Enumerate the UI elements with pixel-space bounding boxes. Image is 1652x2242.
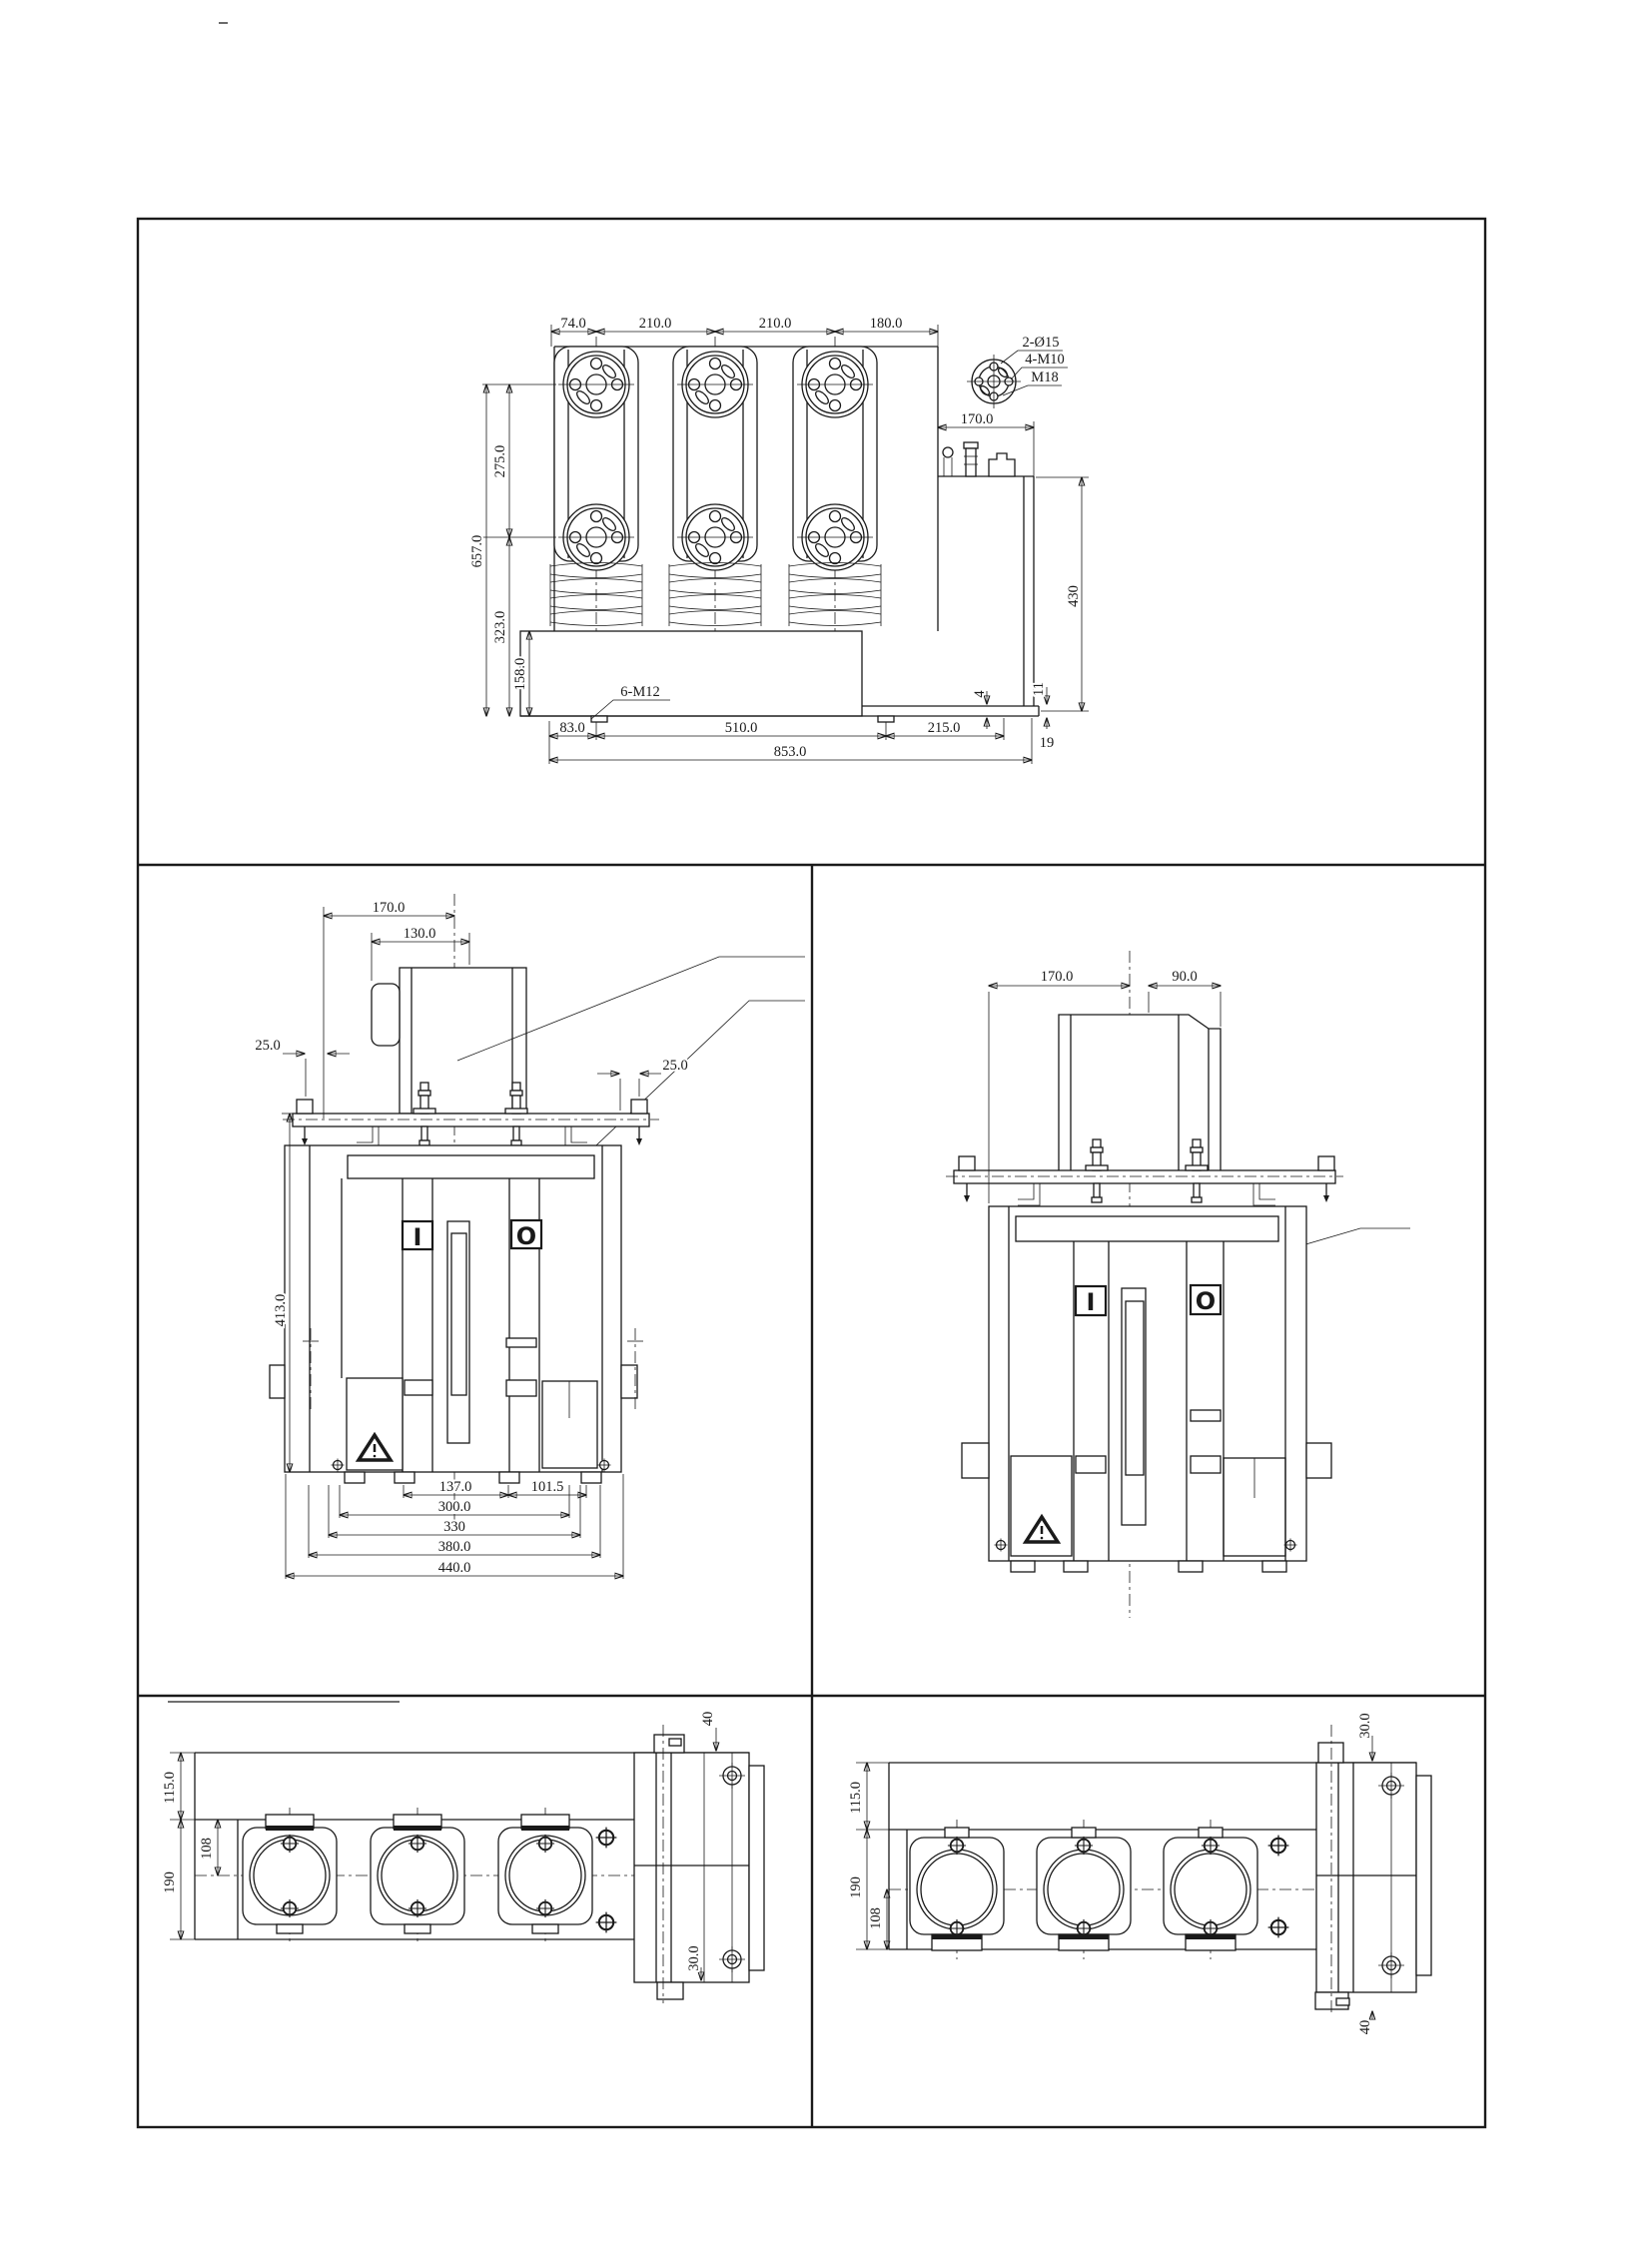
pole-plan-3 — [498, 1808, 592, 1943]
side-view-left — [270, 894, 805, 1579]
plan-view-left — [170, 1725, 764, 2003]
side_view_left-dim-300: 300.0 — [438, 1499, 471, 1515]
front_view-dim-215: 215.0 — [928, 720, 961, 736]
side_view_left-open-button-glyph: O — [516, 1222, 536, 1250]
plan_view_right-dim-40: 40 — [1357, 2020, 1373, 2035]
plan_view_left-dim-190: 190 — [162, 1871, 178, 1893]
pole-plan-1 — [910, 1820, 1004, 1959]
front_view-dim-4: 4 — [972, 690, 988, 698]
pole-plan-2 — [1037, 1820, 1131, 1959]
front_view-dim-180: 180.0 — [870, 316, 903, 332]
plan-view-right — [856, 1725, 1431, 2019]
front-view — [482, 325, 1089, 764]
plan_view_left-dim-40: 40 — [700, 1712, 716, 1727]
front_view-dim-83: 83.0 — [559, 720, 584, 736]
side_view_left-dim-413: 413.0 — [273, 1294, 289, 1327]
plan_view_right-dim-115: 115.0 — [848, 1782, 864, 1814]
plan_view_right-dim-30: 30.0 — [1357, 1713, 1373, 1738]
cad-drawing: 74.0210.0210.0180.02-Ø154-M10M18170.0275… — [0, 0, 1652, 2242]
mechanism-housing — [1315, 1725, 1431, 2013]
front_view-dim-11: 11 — [1031, 682, 1047, 696]
side_view_left-dim-170: 170.0 — [373, 900, 406, 916]
front_view-dim-158: 158.0 — [512, 658, 528, 691]
side_view_left-close-button-glyph: I — [413, 1223, 422, 1251]
pole-plan-1 — [243, 1808, 337, 1943]
plan_view_left-dim-108: 108 — [199, 1838, 215, 1860]
interlock-mechanism — [943, 442, 1015, 476]
side-view-right — [946, 951, 1410, 1618]
side_view_right-open-button-glyph: O — [1196, 1287, 1216, 1315]
front_view-dim-430: 430 — [1066, 585, 1082, 607]
front_view-dim-210-a: 210.0 — [639, 316, 672, 332]
side_view_left-dim-137: 137.0 — [439, 1479, 472, 1495]
side_view_left-dim-440: 440.0 — [438, 1560, 471, 1576]
side_view_left-dim-380: 380.0 — [438, 1539, 471, 1555]
side_view_left-dim-25-right: 25.0 — [662, 1058, 687, 1074]
front_view-dim-853: 853.0 — [774, 744, 807, 760]
plan_view_left-dim-115: 115.0 — [162, 1772, 178, 1804]
front_view-dim-19: 19 — [1040, 735, 1055, 751]
drawing-sheet: 74.0210.0210.0180.02-Ø154-M10M18170.0275… — [0, 0, 1652, 2242]
front_view-dim-323: 323.0 — [492, 611, 508, 644]
terminal-detail-circle — [967, 355, 1021, 408]
page-frame — [138, 23, 1485, 2127]
front_view-dim-210-b: 210.0 — [759, 316, 792, 332]
front_view-callout-4-m10: 4-M10 — [1025, 352, 1064, 368]
side_view_right-dim-170: 170.0 — [1041, 969, 1074, 985]
pole-plan-3 — [1164, 1820, 1257, 1959]
base-frame — [520, 631, 862, 716]
front_view-dim-275: 275.0 — [492, 445, 508, 478]
plan_view_right-dim-190: 190 — [848, 1876, 864, 1898]
pole-plan-2 — [371, 1808, 464, 1943]
plan_view_right-dim-108: 108 — [868, 1907, 884, 1929]
plan_view_left-dim-30: 30.0 — [686, 1945, 702, 1970]
front_view-callout-m18: M18 — [1031, 370, 1058, 385]
side_view_left-dim-330: 330 — [443, 1519, 465, 1535]
front_view-dim-657: 657.0 — [469, 535, 485, 568]
side_view_left-dim-101-5: 101.5 — [531, 1479, 564, 1495]
front_view-callout-2-d15: 2-Ø15 — [1022, 335, 1059, 351]
front_view-dim-170-shelf: 170.0 — [961, 411, 994, 427]
side_view_left-dim-25-left: 25.0 — [255, 1038, 280, 1054]
front_view-callout-6-m12: 6-M12 — [620, 684, 659, 700]
side_view_right-close-button-glyph: I — [1087, 1288, 1096, 1316]
front_view-dim-74: 74.0 — [560, 316, 585, 332]
front_view-dim-510: 510.0 — [725, 720, 758, 736]
side_view_left-dim-130: 130.0 — [404, 926, 436, 942]
side_view_right-dim-90: 90.0 — [1172, 969, 1197, 985]
